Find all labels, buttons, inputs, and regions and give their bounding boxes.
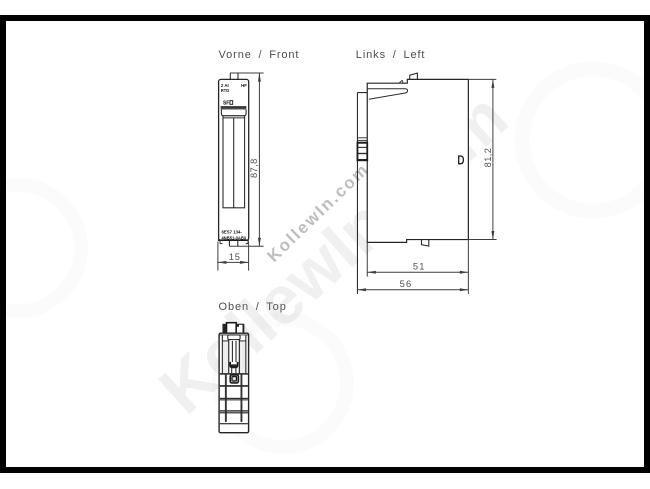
svg-text:6ES7 134-: 6ES7 134- xyxy=(222,229,243,234)
svg-text:51: 51 xyxy=(413,262,426,272)
svg-text:15: 15 xyxy=(229,252,241,262)
svg-text:81,2: 81,2 xyxy=(483,148,493,168)
svg-text:RTD: RTD xyxy=(221,88,230,93)
svg-text:HF: HF xyxy=(241,83,247,88)
svg-text:56: 56 xyxy=(400,279,413,289)
svg-text:SF: SF xyxy=(223,100,229,106)
svg-text:87,8: 87,8 xyxy=(249,158,259,178)
